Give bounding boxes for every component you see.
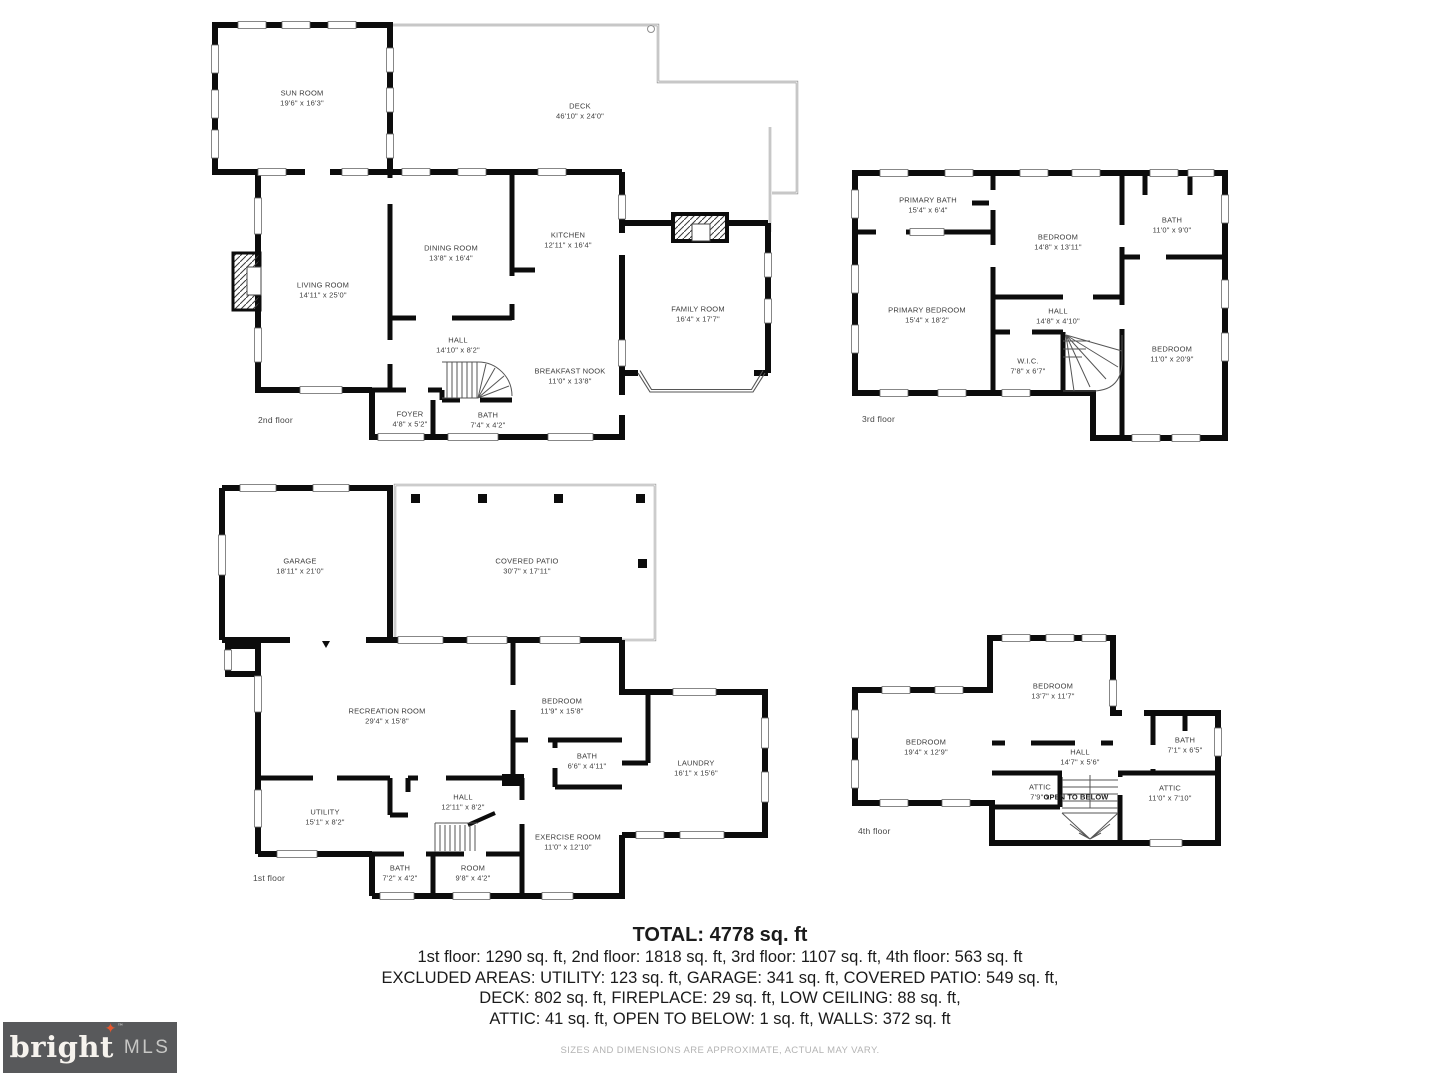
room-label: GARAGE18'11" x 21'0" [276,556,324,576]
room-label: DECK46'10" x 24'0" [556,101,604,121]
plan-2nd-floor: SUN ROOM19'6" x 16'3" DECK46'10" x 24'0"… [210,10,810,455]
room-label: W.I.C.7'8" x 6'7" [1011,356,1046,376]
bright-mls-logo: bright✦™ MLS [3,1022,177,1073]
room-label: COVERED PATIO30'7" x 17'11" [495,556,558,576]
open-to-below-label: OPEN TO BELOW [1044,793,1109,802]
room-label: HALL12'11" x 8'2" [441,792,484,812]
windows [219,485,769,900]
room-label: DINING ROOM13'8" x 16'4" [424,243,478,263]
logo-brand-text: bright✦™ [10,1033,114,1062]
floorplan-canvas: SUN ROOM19'6" x 16'3" DECK46'10" x 24'0"… [0,0,1440,1080]
star-icon: ✦ [105,1022,117,1036]
stairs [1063,335,1122,391]
total-area: TOTAL: 4778 sq. ft [0,924,1440,947]
interior-walls [992,713,1218,843]
room-label: LIVING ROOM14'11" x 25'0" [297,280,349,300]
room-label: SUN ROOM19'6" x 16'3" [280,88,324,108]
excluded-areas-2: DECK: 802 sq. ft, FIREPLACE: 29 sq. ft, … [0,988,1440,1009]
plan-3rd-floor: PRIMARY BATH15'4" x 6'4" BEDROOM14'8" x … [850,165,1235,450]
room-label: BATH7'2" x 4'2" [383,863,418,883]
room-label: HALL14'7" x 5'6" [1060,747,1099,767]
room-label: EXERCISE ROOM11'0" x 12'10" [535,832,601,852]
interior-walls [372,172,535,437]
floor-areas: 1st floor: 1290 sq. ft, 2nd floor: 1818 … [0,947,1440,968]
room-label: FAMILY ROOM16'4" x 17'7" [671,304,725,324]
stairs [442,362,512,398]
floor-label-3rd: 3rd floor [862,414,895,424]
walls-2nd-floor [210,10,810,455]
disclaimer-text: SIZES AND DIMENSIONS ARE APPROXIMATE, AC… [0,1045,1440,1056]
room-label: FOYER4'8" x 5'2" [393,409,428,429]
floor-label-1st: 1st floor [253,873,285,883]
floor-label-4th: 4th floor [858,826,891,836]
stairs [435,823,478,852]
room-label: HALL14'10" x 8'2" [436,335,480,355]
room-label: HALL14'8" x 4'10" [1036,306,1080,326]
room-label: BEDROOM19'4" x 12'9" [904,737,948,757]
room-label: BEDROOM14'8" x 13'11" [1034,232,1082,252]
excluded-areas-3: ATTIC: 41 sq. ft, OPEN TO BELOW: 1 sq. f… [0,1009,1440,1030]
room-label: PRIMARY BEDROOM15'4" x 18'2" [888,305,966,325]
room-label: BEDROOM11'0" x 20'9" [1150,344,1193,364]
plan-4th-floor: BEDROOM13'7" x 11'7" BEDROOM19'4" x 12'9… [850,625,1235,855]
plan-1st-floor: GARAGE18'11" x 21'0" COVERED PATIO30'7" … [218,480,778,905]
excluded-areas-1: EXCLUDED AREAS: UTILITY: 123 sq. ft, GAR… [0,968,1440,989]
room-label: ATTIC11'0" x 7'10" [1148,783,1191,803]
logo-mls-text: MLS [124,1037,171,1059]
walls-1st-floor [218,480,778,905]
trademark-symbol: ™ [117,1024,124,1030]
room-label: BEDROOM13'7" x 11'7" [1031,681,1074,701]
bay-window [638,371,765,393]
room-label: KITCHEN12'11" x 16'4" [544,230,592,250]
room-label: BATH6'6" x 4'11" [568,751,607,771]
garage-door [290,637,366,649]
area-summary: TOTAL: 4778 sq. ft 1st floor: 1290 sq. f… [0,924,1440,1029]
room-label: BREAKFAST NOOK11'0" x 13'8" [534,366,605,386]
room-label: BATH7'4" x 4'2" [471,410,506,430]
room-label: ROOM9'8" x 4'2" [456,863,491,883]
room-label: BATH11'0" x 9'0" [1153,215,1192,235]
deck-outline [390,25,797,232]
room-label: PRIMARY BATH15'4" x 6'4" [899,195,957,215]
room-label: LAUNDRY16'1" x 15'6" [674,758,718,778]
room-label: BEDROOM11'9" x 15'8" [540,696,583,716]
stairs [1062,775,1118,839]
room-label: RECREATION ROOM29'4" x 15'8" [348,706,425,726]
room-label: UTILITY15'1" x 8'2" [305,807,344,827]
room-label: BATH7'1" x 6'5" [1168,735,1203,755]
floor-label-2nd: 2nd floor [258,415,293,425]
